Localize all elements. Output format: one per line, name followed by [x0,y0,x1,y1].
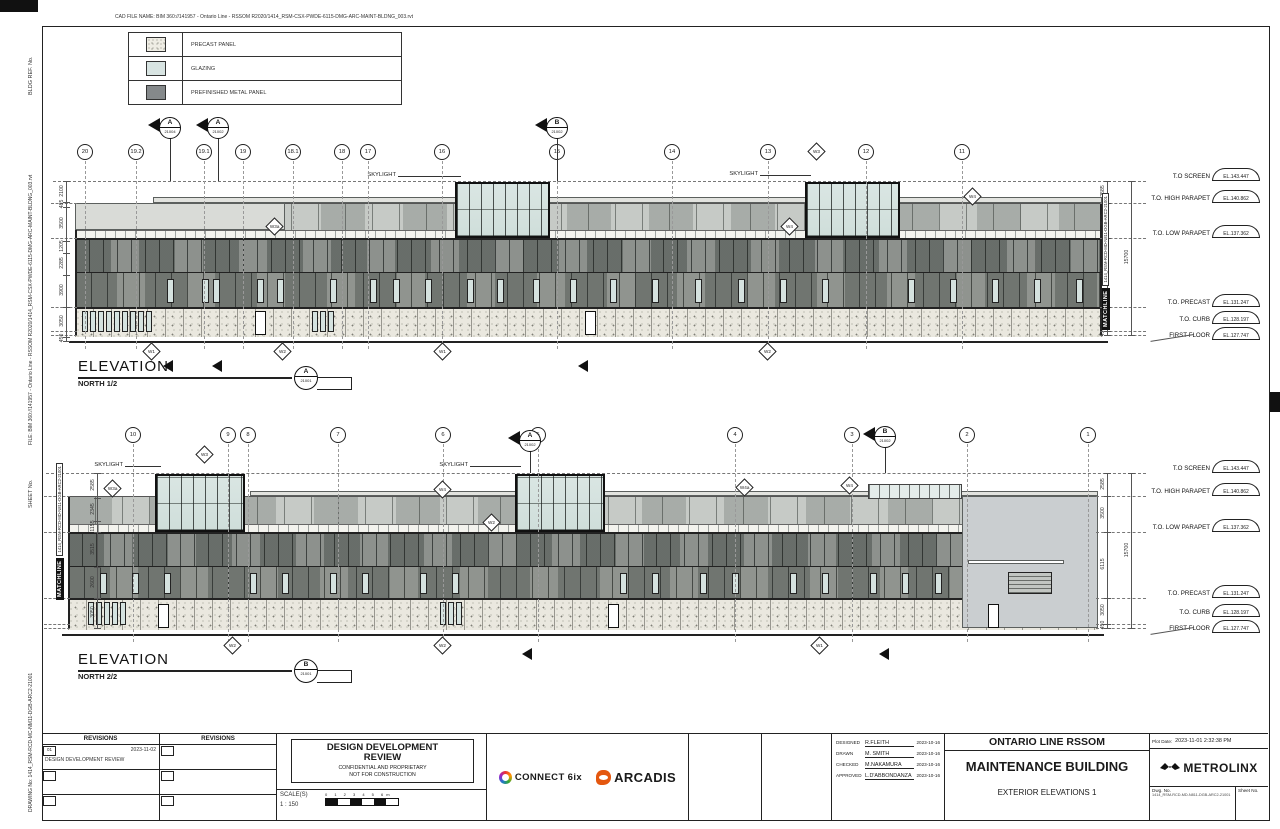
grid-line [338,444,339,642]
window-slit [902,573,909,594]
view-tag-number: 21001 [295,670,317,677]
window-slit [908,279,915,303]
grid-line [557,161,558,349]
section-flag-arrow-icon [148,118,160,132]
grid-bubble: 8 [240,427,256,443]
facade-left-edge [68,496,70,628]
window-slit [870,573,877,594]
dim-text: 3900 [59,277,65,303]
view-tag-letter: B [295,660,317,670]
facade-window-band [75,272,1102,308]
dim-tick [94,628,101,629]
revision-no-box [161,746,174,756]
grid-bubble: 3 [844,427,860,443]
grid-line [136,161,137,349]
precast-slit [456,602,462,625]
window-slit [652,279,659,303]
grid-line [228,444,229,642]
window-slit [992,279,999,303]
grid-line [443,444,444,642]
facade-overlay [153,197,1102,203]
precast-slit [138,311,144,332]
level-el-arc: EL.143.447 [1212,460,1260,473]
legend-row-glazing: GLAZING [129,56,401,80]
window-slit [250,573,257,594]
dim-tick [63,207,70,208]
legend-row-metal: PREFINISHED METAL PANEL [129,80,401,104]
wall-tag-label: W2 [439,643,446,648]
dim-line [66,181,67,341]
section-flag: A21002 [207,117,229,139]
dim-text: 2600 [90,569,96,595]
window-slit [620,573,627,594]
window-slit [780,279,787,303]
skylight-leader [125,466,161,467]
matchline-label: MATCHLINE [1102,288,1110,330]
metrolinx-wordmark: METROLINX [1183,761,1257,775]
window-slit [570,279,577,303]
window-slit [822,279,829,303]
skylight-label: SKYLIGHT [79,462,123,468]
window-slit [950,279,957,303]
revision-no-box [43,796,56,806]
dim-text: 3500 [1100,500,1106,526]
dim-tick [94,532,101,533]
grid-bubble: 18 [334,144,350,160]
dim-tick [63,341,70,342]
corner-black-tab [0,0,38,12]
facade-metal-band [68,532,1098,568]
door [158,604,169,628]
window-slit [610,279,617,303]
window-slit [330,573,337,594]
dim-tick [1104,181,1111,182]
credits-cell: DESIGNED R.FLEITH 2023-10-16 DRAWN M. SM… [832,734,945,820]
grid-bubble: 7 [330,427,346,443]
dim-text: 15700 [1124,244,1130,270]
bldg-ref-label: BLDG REF. No. [28,56,34,95]
dim-tick [1128,181,1135,182]
window-slit [533,279,540,303]
section-line [530,451,531,473]
wall-tag-label: W4 [969,194,976,199]
revisions-header: REVISIONS [42,734,159,745]
level-label: T.O. PRECAST [1098,299,1210,306]
scale-value: 1 : 150 [280,802,298,808]
view-tag: B21001 [294,659,318,683]
dim-text: 6115 [1100,551,1106,577]
level-el-arc: EL.143.447 [1212,168,1260,181]
window-slit [790,573,797,594]
skylight-label: SKYLIGHT [352,172,396,178]
building-name: MAINTENANCE BUILDING [945,759,1149,774]
dim-tick [1104,496,1111,497]
dim-tick [1104,532,1111,533]
door [255,311,266,335]
level-label: T.O SCREEN [1098,465,1210,472]
dim-text: 3515 [90,536,96,562]
section-flag-arrow-icon [535,118,547,132]
section-cut-arrow-icon [578,360,588,372]
title-block: REVISIONS 01 2023-11-02 DESIGN DEVELOPME… [42,733,1268,820]
scale-bar-numbers: 0 1 2 3 4 5 6m [325,792,393,797]
skylight-glazing [805,182,900,238]
wall-tag-label: W1 [148,349,155,354]
section-line [170,138,171,181]
credit-role: APPROVED [836,773,862,778]
dim-tick [63,202,70,203]
section-flag-letter: A [520,431,540,441]
dim-tick [94,473,101,474]
metal-swatch-icon [129,81,183,104]
project-name: ONTARIO LINE RSSOM [945,734,1149,751]
skylight-label: SKYLIGHT [714,171,758,177]
plot-metrolinx-cell: Plot Date: 2023-11-01 2:32:38 PM METROLI… [1150,734,1268,820]
view-tag-tail [317,377,352,390]
precast-slit [448,602,454,625]
dim-line [97,473,98,628]
section-cut-arrow-icon [879,648,889,660]
window-slit [695,279,702,303]
window-slit [167,279,174,303]
level-label: T.O. CURB [1098,316,1210,323]
level-label: T.O. PRECAST [1098,590,1210,597]
credit-date: 2023-10-16 [917,773,941,778]
dim-tick [1104,473,1111,474]
section-line [218,138,219,181]
wall-tag-label: W1 [439,349,446,354]
matchline-number: 1414_RSM-RCD-MD-N811-DGB-ARC2-21001 [1102,193,1109,286]
connect6ix-wordmark: CONNECT 6ix [515,772,582,783]
door [608,604,619,628]
sheet-title: EXTERIOR ELEVATIONS 1 [945,788,1149,797]
dim-tick [1128,473,1135,474]
stamp-line4: NOT FOR CONSTRUCTION [292,772,473,778]
matchline-label: MATCHLINE [56,558,64,600]
section-line [885,447,886,473]
section-flag: A21002 [519,430,541,452]
grid-line [248,444,249,642]
level-line-screen [46,473,1146,474]
wall-tag-label: W1 [816,643,823,648]
metrolinx-logo: METROLINX [1150,749,1268,787]
grid-bubble: 12 [858,144,874,160]
skylight-glazing [515,474,605,532]
grid-line [133,444,134,642]
credit-role: DESIGNED [836,740,862,745]
precast-slit [104,602,110,625]
sheet-no-cell: Sheet No. [1238,788,1258,793]
facade-precast-band [68,598,1098,630]
dim-tick [63,337,70,338]
legend-row-precast: PRECAST PANEL [129,32,401,56]
stamp-line3: CONFIDENTIAL AND PROPRIETARY [292,765,473,772]
metrolinx-chevron-icon [1160,761,1180,774]
grid-line [85,161,86,349]
section-cut-arrow-icon [212,360,222,372]
grid-bubble: 16 [434,144,450,160]
dim-tick [94,567,101,568]
matchline-number: 1414_RSM-RCD-MD-N811-DGB-ARC2-21001 [56,463,63,556]
revision-no-box [161,771,174,781]
plot-date-label: Plot Date: [1152,739,1172,744]
scale-label: SCALE(S) [280,792,308,798]
precast-slit [90,311,96,332]
revisions-header: REVISIONS [160,734,276,745]
window-slit [1034,279,1041,303]
window-slit [1076,279,1083,303]
credit-name: M.NAKAMURA [865,762,914,769]
wall-tag-label: W3a [108,486,117,491]
window-slit [100,573,107,594]
view-tag-number: 21001 [295,377,317,384]
legend-label: GLAZING [183,66,215,72]
revisions-column-b: REVISIONS [160,734,277,820]
section-flag-number: 21004 [160,128,180,135]
grid-line [342,161,343,349]
grid-line [442,161,443,349]
project-cell: ONTARIO LINE RSSOM MAINTENANCE BUILDING … [945,734,1150,820]
dim-tick [63,253,70,254]
section-flag-number: 21002 [208,128,228,135]
dim-line-overall [1131,181,1132,335]
revision-date: 2023-11-02 [131,747,156,753]
dim-tick [1104,598,1111,599]
grid-line [962,161,963,349]
grid-bubble: 9 [220,427,236,443]
sheet-no-label: SHEET No. [28,480,34,508]
stamp-cell: DESIGN DEVELOPMENT REVIEW CONFIDENTIAL A… [277,734,487,820]
revision-no-box [43,771,56,781]
empty-cell-2 [762,734,832,820]
precast-slit [320,311,326,332]
dim-tick [94,598,101,599]
level-label: T.O. LOW PARAPET [1098,230,1210,237]
legend-label: PRECAST PANEL [183,42,236,48]
door [988,604,999,628]
level-label: T.O. HIGH PARAPET [1098,195,1210,202]
grid-line [368,161,369,349]
logos-cell: CONNECT 6ix ARCADIS [487,734,689,820]
window-slit [467,279,474,303]
window-slit [282,573,289,594]
window-slit [738,279,745,303]
window-slit [330,279,337,303]
credit-name: L.D'ABBONDANZA [865,773,914,780]
grid-bubble: 1 [1080,427,1096,443]
dim-tick [63,275,70,276]
wall-tag-label: W4a [740,485,749,490]
wall-tag-label: W3 [813,149,820,154]
grid-bubble: 18.1 [285,144,301,160]
wall-tag-label: W2 [764,349,771,354]
arcadis-logo: ARCADIS [596,770,676,785]
dim-tick [94,521,101,522]
skylight-glazing [155,474,245,532]
window-slit [935,573,942,594]
revision-no: 01 [43,746,56,756]
grid-line [672,161,673,349]
dim-text: 3050 [90,599,96,625]
level-label: T.O. HIGH PARAPET [1098,488,1210,495]
level-el-arc: EL.127.747 [1212,620,1260,633]
level-label: T.O. LOW PARAPET [1098,524,1210,531]
grid-bubble: 17 [360,144,376,160]
section-flag-letter: A [208,118,228,128]
precast-slit [112,602,118,625]
section-line [557,138,558,181]
wall-tag-label: W3 [201,452,208,457]
grid-bubble: 10 [125,427,141,443]
precast-slit [146,311,152,332]
window-slit [393,279,400,303]
wall-tag-label: W4 [786,224,793,229]
dim-tick [63,181,70,182]
credit-date: 2023-10-16 [917,751,941,756]
section-flag: B21002 [874,426,896,448]
level-label: T.O. CURB [1098,609,1210,616]
dwg-no-cell: Dwg. No. 1414_RSM-RCD-MD-N811-DGB-ARC2-2… [1150,787,1236,820]
grid-line [866,161,867,349]
file-bim-label: FILE: BIM 360://141957 - Ontario Line - … [28,175,34,445]
level-el-arc: EL.140.862 [1212,483,1260,496]
precast-slit [328,311,334,332]
grid-bubble: 19.2 [128,144,144,160]
grid-bubble: 13 [760,144,776,160]
credit-role: CHECKED [836,762,862,767]
skylight-leader [470,466,521,467]
grid-line [967,444,968,642]
level-line-curb [44,624,70,625]
precast-slit [312,311,318,332]
precast-slit [120,602,126,625]
window-slit [425,279,432,303]
revisions-column-a: REVISIONS 01 2023-11-02 DESIGN DEVELOPME… [42,734,160,820]
elevation-title: ELEVATION [78,358,169,375]
precast-slit [114,311,120,332]
credit-name: R.FLEITH [865,740,914,747]
level-el-arc: EL.128.197 [1212,311,1260,324]
precast-slit [98,311,104,332]
credit-name: M. SMITH [865,751,914,758]
grade-line [69,341,1108,343]
facade-overlay [75,203,285,230]
grid-line [852,444,853,642]
skylight-label: SKYLIGHT [424,462,468,468]
section-flag-arrow-icon [196,118,208,132]
grid-bubble: 19 [235,144,251,160]
grid-line [293,161,294,349]
grid-line [735,444,736,642]
cad-file-name: CAD FILE NAME: BIM 360://141957 - Ontari… [115,14,413,20]
credit-row: DRAWN M. SMITH 2023-10-16 [836,751,940,758]
window-slit [700,573,707,594]
dim-line-overall [1131,473,1132,628]
level-el-arc: EL.140.862 [1212,190,1260,203]
connect6ix-ring-icon [499,771,512,784]
precast-swatch-icon [129,33,183,56]
connect6ix-logo: CONNECT 6ix [499,771,582,784]
grid-line [1088,444,1089,642]
dim-text: 450 [59,325,65,351]
arcadis-mark-icon [596,770,611,785]
credit-row: CHECKED M.NAKAMURA 2023-10-16 [836,762,940,769]
credit-date: 2023-10-16 [917,740,941,745]
wall-tag-label: W2 [229,643,236,648]
wall-tag-label: W3a [270,224,279,229]
window-slit [277,279,284,303]
matchline: MATCHLINE1414_RSM-RCD-MD-N811-DGB-ARC2-2… [1094,200,1112,330]
drawing-sheet: CAD FILE NAME: BIM 360://141957 - Ontari… [0,0,1280,829]
stamp-line2: REVIEW [292,753,473,763]
louver-panel [1008,572,1052,594]
drawing-no-label: DRAWING No: 1414_RSM-RCD-MC-NM11-DGB-ARC… [28,673,34,812]
window-slit [213,279,220,303]
wall-tag-label: W4 [846,483,853,488]
section-flag: B21002 [546,117,568,139]
plot-date-value: 2023-11-01 2:32:38 PM [1175,738,1231,744]
grid-line [538,444,539,642]
dim-tick [94,498,101,499]
grid-line [204,161,205,349]
section-flag-number: 21002 [520,441,540,448]
stamp-box: DESIGN DEVELOPMENT REVIEW CONFIDENTIAL A… [291,739,474,783]
grid-bubble: 20 [77,144,93,160]
matchline: MATCHLINE1414_RSM-RCD-MD-N811-DGB-ARC2-2… [48,470,66,600]
dwg-no-value: 1414_RSM-RCD-MD-N811-DGB-ARC2-21001 [1152,793,1233,797]
section-flag-letter: B [547,118,567,128]
skylight-glazing [455,182,550,238]
door [585,311,596,335]
window-slit [822,573,829,594]
dim-text: 1155 [90,513,96,539]
wall-tag-label: W2 [279,349,286,354]
section-flag-letter: A [160,118,180,128]
wall-tag-label: W2 [488,520,495,525]
elevation-subtitle: NORTH 1/2 [78,379,117,388]
grid-bubble: 6 [435,427,451,443]
revision-desc: DESIGN DEVELOPMENT REVIEW [45,757,124,763]
credit-row: APPROVED L.D'ABBONDANZA 2023-10-16 [836,773,940,780]
grade-line [62,634,1104,636]
view-tag: A21001 [294,366,318,390]
window-slit [652,573,659,594]
section-flag-letter: B [875,427,895,437]
grid-bubble: 14 [664,144,680,160]
level-el-arc: EL.137.362 [1212,519,1260,532]
level-el-arc: EL.131.247 [1212,585,1260,598]
view-tag-tail [317,670,352,683]
section-flag-number: 21002 [547,128,567,135]
grid-line [768,161,769,349]
level-el-arc: EL.131.247 [1212,294,1260,307]
section-flag-arrow-icon [863,427,875,441]
skylight-leader [398,176,461,177]
level-label: T.O SCREEN [1098,173,1210,180]
facade-metal-band [75,238,1102,274]
empty-cell-1 [689,734,762,820]
level-el-arc: EL.127.747 [1212,327,1260,340]
glazing-strip [868,484,962,499]
window-slit [497,279,504,303]
section-flag-number: 21002 [875,437,895,444]
window-slit [370,279,377,303]
elevation-title: ELEVATION [78,651,169,668]
elevation-subtitle: NORTH 2/2 [78,672,117,681]
material-legend: PRECAST PANEL GLAZING PREFINISHED METAL … [128,32,402,105]
credit-date: 2023-10-16 [917,762,941,767]
dim-tick [63,307,70,308]
